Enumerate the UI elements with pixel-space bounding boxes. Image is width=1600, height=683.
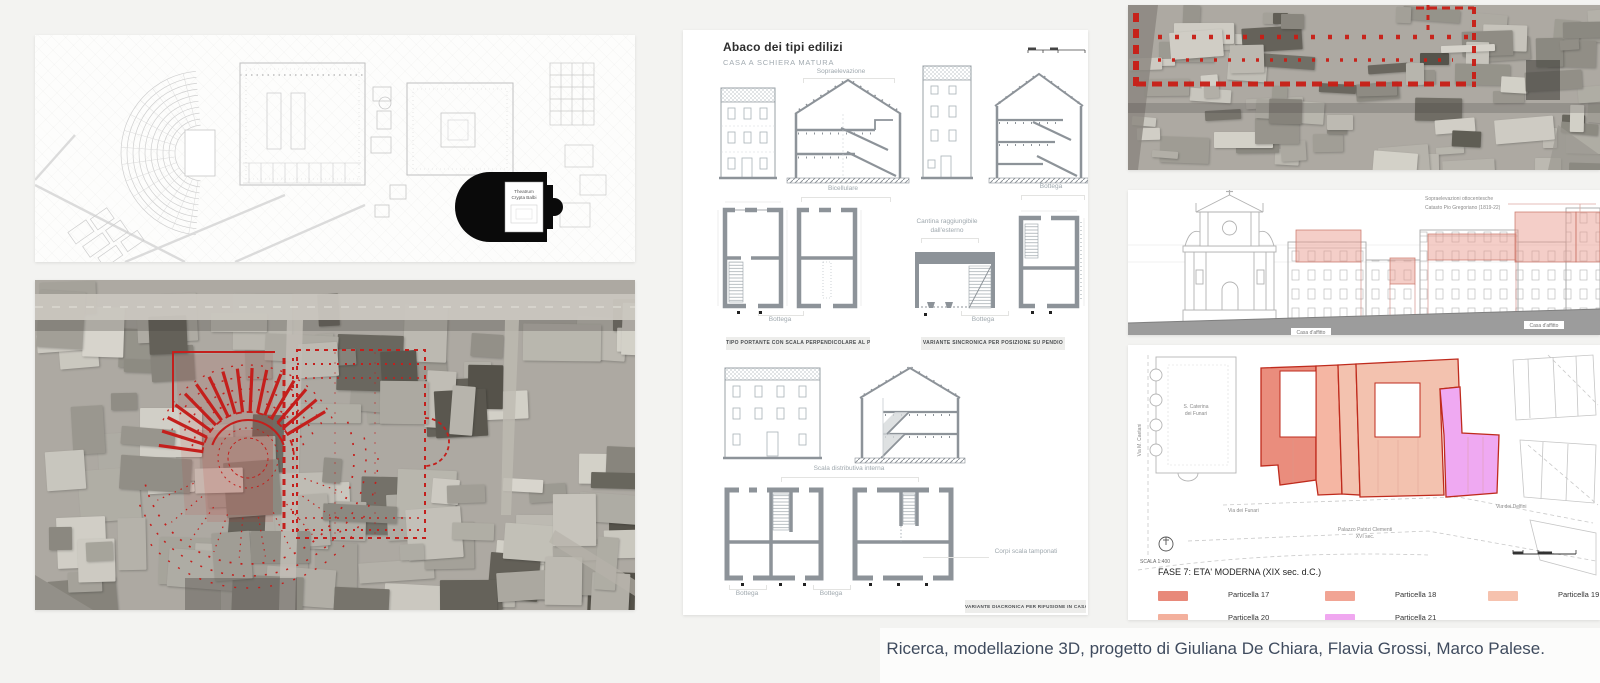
abaco-subtitle: CASA A SCHIERA MATURA — [723, 58, 834, 67]
label-bottega-a: Bottega — [1040, 183, 1062, 190]
street-label-funari: Via dei Funari — [1228, 508, 1259, 514]
north-arrow-icon — [1159, 537, 1173, 551]
legend-label-particella-19: Particella 19 — [1558, 590, 1599, 599]
legend-swatch-particella-18 — [1325, 591, 1355, 601]
label-sopraelevazione: Sopraelevazione — [817, 68, 865, 75]
elevation-drawing: Sopraelevazioni ottocentesche Catasto Pi… — [1128, 190, 1600, 335]
theatre-red-overlay — [35, 280, 635, 610]
ground-label-left: Casa d'affitto — [1297, 330, 1326, 335]
ground-label-right: Casa d'affitto — [1530, 323, 1559, 329]
abaco-drawings — [683, 30, 1088, 615]
scale-text: SCALA 1:400 — [1140, 559, 1170, 565]
theatre-label-line1: Theatrum — [514, 189, 534, 194]
legend-label-particella-17: Particella 17 — [1228, 590, 1269, 599]
legend-swatch-particella-21 — [1325, 614, 1355, 620]
archaeological-map-panel: Theatrum Crypta Balbi — [35, 35, 635, 262]
abaco-title: Abaco dei tipi edilizi — [723, 40, 843, 54]
label-bottega-e: Bottega — [820, 590, 842, 597]
label-cantina-line2: dall'esterno — [930, 227, 963, 234]
scale-bar — [1513, 550, 1576, 554]
label-bottega-c: Bottega — [972, 316, 994, 323]
elevation-note-line1: Sopraelevazioni ottocentesche — [1425, 196, 1493, 202]
theatre-label-line2: Crypta Balbi — [511, 195, 536, 200]
caption-box-tipo-portante: TIPO PORTANTE CON SCALA PERPENDICOLARE A… — [726, 337, 870, 350]
legend-swatch-particella-19 — [1488, 591, 1518, 601]
abaco-panel: Abaco dei tipi edilizi CASA A SCHIERA MA… — [683, 30, 1088, 615]
credits-caption: Ricerca, modellazione 3D, progetto di Gi… — [886, 639, 1545, 659]
legend-label-particella-20: Particella 20 — [1228, 613, 1269, 620]
red-dashed-overlay — [1128, 5, 1600, 170]
phase-title: FASE 7: ETA' MODERNA (XIX sec. d.C.) — [1158, 567, 1321, 577]
archaeological-map-drawing: Theatrum Crypta Balbi — [35, 35, 635, 262]
palazzo-label-line2: XVI sec. — [1356, 534, 1375, 540]
phase-plan-drawing: S. Caterina dei Funari Via M. Caetani — [1128, 345, 1600, 620]
legend-swatch-particella-17 — [1158, 591, 1188, 601]
aerial-photo-red-grid-panel — [1128, 5, 1600, 170]
palazzo-label-line1: Palazzo Patrizi Clementi — [1338, 527, 1392, 533]
street-label-caetani: Via M. Caetani — [1137, 424, 1143, 457]
street-label-delfini: Via dei Delfini — [1496, 504, 1526, 510]
aerial-photo-overlay-panel — [35, 280, 635, 610]
label-scala-distributiva: Scala distributiva interna — [814, 465, 885, 472]
street-elevation-panel: Sopraelevazioni ottocentesche Catasto Pi… — [1128, 190, 1600, 335]
caption-box-variante-diacronica: VARIANTE DIACRONICA PER RIFUSIONE IN CAS… — [965, 600, 1086, 613]
label-corpi-scala: Corpi scala tamponati — [995, 548, 1058, 555]
elevation-note-line2: Catasto Pio Gregoriano (1819-22) — [1425, 205, 1501, 211]
legend-swatch-particella-20 — [1158, 614, 1188, 620]
label-cantina-line1: Cantina raggiungibile — [916, 218, 977, 225]
caption-box-variante-sincronica: VARIANTE SINCRONICA PER POSIZIONE SU PEN… — [921, 337, 1065, 350]
legend-label-particella-21: Particella 21 — [1395, 613, 1436, 620]
church-label-line2: dei Funari — [1185, 411, 1207, 417]
label-bottega-b: Bottega — [769, 316, 791, 323]
church-label-line1: S. Caterina — [1183, 404, 1208, 410]
phase-plan-panel: S. Caterina dei Funari Via M. Caetani — [1128, 345, 1600, 620]
presentation-board: { "caption": "Ricerca, modellazione 3D, … — [0, 0, 1600, 683]
label-bottega-d: Bottega — [736, 590, 758, 597]
label-bicellulare: Bicellulare — [828, 185, 858, 192]
crypta-balbi-black-footprint: Theatrum Crypta Balbi — [455, 172, 563, 242]
legend-label-particella-18: Particella 18 — [1395, 590, 1436, 599]
